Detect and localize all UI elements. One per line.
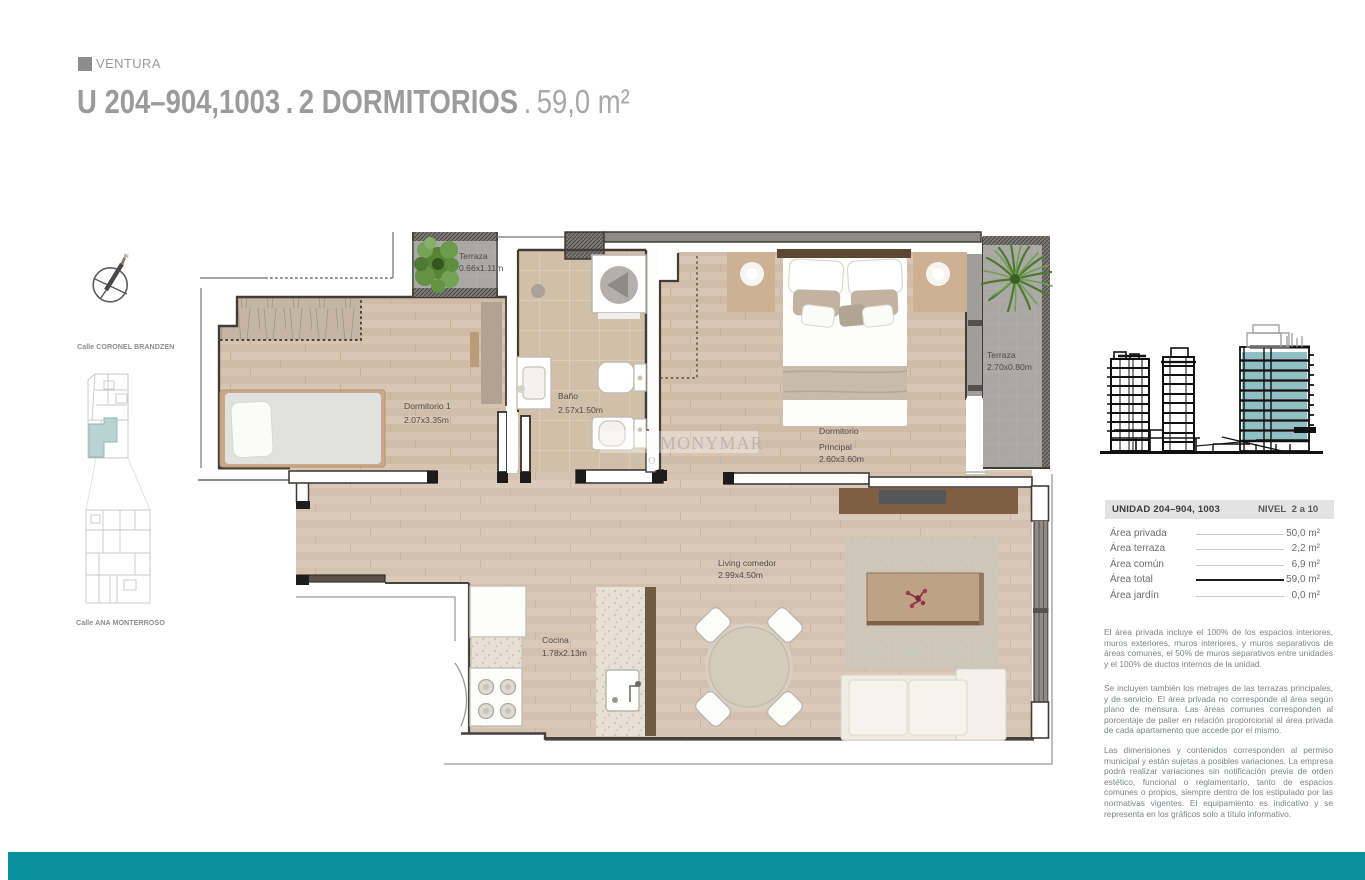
svg-text:Cocina: Cocina: [542, 635, 569, 645]
svg-text:1.78x2.13m: 1.78x2.13m: [542, 648, 587, 658]
svg-text:Terraza: Terraza: [987, 350, 1016, 360]
svg-text:Principal: Principal: [819, 442, 852, 452]
svg-text:Dormitorio 1: Dormitorio 1: [404, 401, 451, 411]
svg-text:0.66x1.11m: 0.66x1.11m: [459, 263, 503, 273]
svg-text:2.60x3.60m: 2.60x3.60m: [819, 454, 864, 464]
svg-text:2.07x3.35m: 2.07x3.35m: [404, 415, 449, 425]
svg-text:2.57x1.50m: 2.57x1.50m: [558, 405, 603, 415]
svg-text:Living comedor: Living comedor: [718, 558, 776, 568]
svg-text:INMOBILIARIA: INMOBILIARIA: [604, 456, 773, 467]
svg-text:2.99x4.50m: 2.99x4.50m: [718, 570, 763, 580]
svg-text:2.70x0.80m: 2.70x0.80m: [987, 362, 1032, 372]
svg-text:Baño: Baño: [558, 391, 578, 401]
svg-text:N: N: [124, 253, 129, 260]
svg-text:Dormitorio: Dormitorio: [819, 426, 859, 436]
svg-text:MONYMAR: MONYMAR: [660, 433, 764, 453]
svg-text:Terraza: Terraza: [459, 251, 488, 261]
